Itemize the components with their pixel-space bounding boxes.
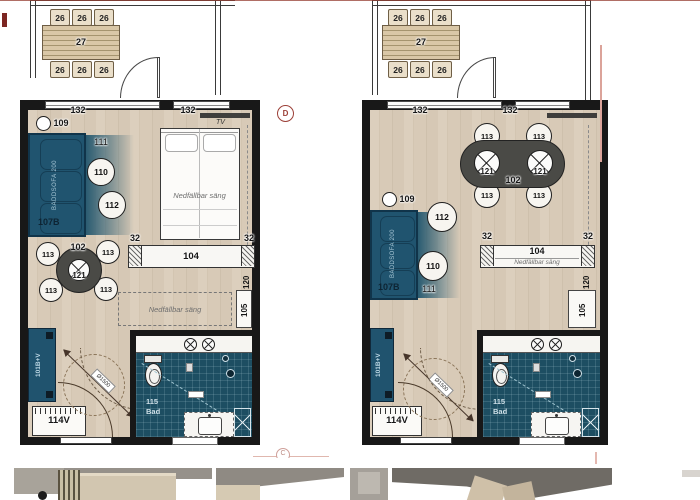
wardrobe-label: 101B+V <box>375 339 382 391</box>
bathroom-threshold <box>519 437 565 445</box>
balcony-chair: 26 <box>410 9 430 26</box>
render-thumbnail <box>216 468 344 500</box>
wardrobe: 101B+V <box>370 328 394 402</box>
render-wall <box>14 468 64 494</box>
grid-line-d <box>0 0 700 1</box>
dim-width: 132 <box>492 106 528 116</box>
dining-chair-label: 113 <box>45 286 57 295</box>
sofa-cushion <box>380 243 415 269</box>
fold-line <box>247 125 248 265</box>
balcony-chair: 26 <box>72 9 92 26</box>
render-ceiling <box>682 470 700 477</box>
side-table: 110 <box>418 251 448 281</box>
shelf-cabinet <box>241 246 254 266</box>
shower-head <box>569 355 576 362</box>
guide-tag <box>535 391 551 398</box>
lounge-chair-label: 112 <box>435 212 449 222</box>
bathroom-threshold <box>172 437 218 445</box>
pillow <box>165 134 198 152</box>
ceiling-spotlight <box>184 338 197 351</box>
sofa-cushion <box>40 171 82 202</box>
balcony-chair: 26 <box>432 9 452 26</box>
outlet-symbol <box>533 363 540 372</box>
balcony-door-arc <box>457 57 495 98</box>
dim-105: 105 <box>578 298 587 322</box>
shelf-cabinet <box>481 246 494 266</box>
rug-label: 111 <box>92 138 110 148</box>
balcony-chair-label: 26 <box>437 65 446 75</box>
bathroom-ceiling-band <box>136 336 252 353</box>
balcony-chair-label: 26 <box>77 65 86 75</box>
wall-left <box>20 110 28 445</box>
side-table: 110 <box>87 158 115 186</box>
balcony-chair: 26 <box>72 61 92 78</box>
spotlight-label: 121 <box>477 168 497 177</box>
grid-marker-c-label: C <box>280 449 285 458</box>
balcony-right: 27 26 26 26 26 26 26 <box>372 0 590 100</box>
wardrobe-handle <box>46 332 53 339</box>
sofa: BÄDDSOFA 200 107B <box>28 133 86 237</box>
bathroom-tiles: 115 Bad <box>483 353 600 437</box>
keynote-balloon <box>382 192 397 207</box>
balcony-railing-left <box>30 0 36 78</box>
side-table-label: 110 <box>94 167 108 177</box>
section-line-small <box>595 452 597 464</box>
vanity <box>531 412 581 437</box>
balcony-door-leaf <box>157 57 160 98</box>
balcony-left: 27 26 26 26 26 26 26 <box>30 0 235 100</box>
bath-name-label: Bad <box>146 407 160 416</box>
spotlight-label: 121 <box>530 168 550 177</box>
dining-chair-label: 113 <box>100 285 112 294</box>
dining-chair-label: 113 <box>102 248 114 257</box>
dining-chair-label: 113 <box>42 250 54 259</box>
balcony-chair: 26 <box>94 9 114 26</box>
render-cabinet <box>216 485 260 500</box>
balcony-table: 27 <box>42 25 120 60</box>
bed-seam <box>163 225 237 226</box>
fold-bed-label: Nedfällbar säng <box>495 258 579 266</box>
bathroom-tiles: 115 Bad <box>136 353 252 437</box>
balcony-table: 27 <box>382 25 460 60</box>
balcony-chair: 26 <box>410 61 430 78</box>
vanity-faucet <box>208 414 211 417</box>
shelf-unit: 104 Nedfällbar säng <box>480 245 595 268</box>
shower-head <box>222 355 229 362</box>
bathroom-ceiling-band <box>483 336 600 353</box>
dim-width: 132 <box>402 106 438 116</box>
balcony-divider <box>215 0 221 95</box>
bath-number-label: 115 <box>146 397 158 406</box>
shower <box>582 408 599 437</box>
dim-32: 32 <box>239 234 259 244</box>
rug-label: 111 <box>420 285 438 295</box>
balcony-chair-label: 26 <box>99 13 108 23</box>
wardrobe-label: 101B+V <box>35 339 42 391</box>
keynote-label: 109 <box>396 195 418 205</box>
side-table-label: 110 <box>426 261 440 271</box>
dim-104: 104 <box>495 247 579 257</box>
outlet-symbol <box>186 363 193 372</box>
render-thumbnail <box>616 470 700 500</box>
rug <box>86 135 134 235</box>
balcony-chair-label: 26 <box>415 65 424 75</box>
vanity-basin <box>545 417 569 435</box>
floor-drain <box>226 369 235 378</box>
tv-label: TV <box>216 119 225 126</box>
dim-104: 104 <box>143 252 239 262</box>
balcony-chair: 26 <box>432 61 452 78</box>
dining-table-label: 102 <box>68 243 88 253</box>
balcony-chair-label: 26 <box>99 65 108 75</box>
vanity-basin <box>198 417 222 435</box>
balcony-chair-label: 26 <box>393 13 402 23</box>
balcony-table-label: 27 <box>416 38 426 48</box>
section-line <box>600 45 602 162</box>
dining-table-label: 102 <box>503 176 523 186</box>
dining-chair-label: 113 <box>533 191 545 200</box>
bath-name-label: Bad <box>493 407 507 416</box>
toilet-tank <box>491 355 509 363</box>
dim-32: 32 <box>477 232 497 242</box>
grid-marker-d: D <box>277 105 294 122</box>
keynote-label: 109 <box>50 119 72 129</box>
bed-divider <box>199 129 200 238</box>
floor-plan-sheet: 27 26 26 26 26 26 26 27 26 26 26 26 26 2… <box>0 0 700 500</box>
balcony-chair: 26 <box>94 61 114 78</box>
balcony-chair: 26 <box>50 61 70 78</box>
fold-line <box>588 125 589 265</box>
render-wall <box>358 472 380 494</box>
ceiling-spotlight <box>202 338 215 351</box>
vanity-faucet <box>555 414 558 417</box>
balcony-chair-label: 26 <box>437 13 446 23</box>
render-lamp <box>38 491 47 500</box>
dim-105: 105 <box>240 298 249 322</box>
fold-bed-projection: Nedfällbar säng <box>118 292 232 326</box>
pillow <box>203 134 236 152</box>
balcony-door-arc <box>120 57 158 98</box>
section-tick <box>2 13 7 27</box>
bathroom: 115 Bad <box>130 330 252 437</box>
balcony-chair: 26 <box>50 9 70 26</box>
shelf-unit: 104 <box>128 245 255 268</box>
wall-right <box>252 110 260 445</box>
fold-bed-label: Nedfällbar säng <box>149 305 202 314</box>
balcony-wall-right <box>585 0 591 100</box>
dim-32: 32 <box>125 234 145 244</box>
shelf-cabinet <box>129 246 142 266</box>
balcony-chair-label: 26 <box>415 13 424 23</box>
wall-left <box>362 110 370 445</box>
keynote-balloon <box>36 116 51 131</box>
grid-marker-c: C <box>276 448 293 458</box>
balcony-chair-label: 26 <box>55 65 64 75</box>
fold-bed-label: Nedfällbar säng <box>161 191 238 200</box>
spotlight-label: 121 <box>69 272 89 281</box>
ceiling-spotlight <box>549 338 562 351</box>
fold-down-bed: Nedfällbar säng <box>160 128 240 240</box>
balcony-chair-label: 26 <box>55 13 64 23</box>
lounge-chair: 112 <box>98 191 126 219</box>
wardrobe-handle <box>385 391 392 398</box>
balcony-table-label: 27 <box>76 38 86 48</box>
render-slats <box>58 470 80 500</box>
grid-marker-d-label: D <box>283 109 289 118</box>
dim-32: 32 <box>578 232 598 242</box>
render-thumbnail <box>392 468 612 500</box>
sofa-cushion <box>40 139 82 170</box>
bathroom: 115 Bad <box>477 330 600 437</box>
dim-105-band: 105 <box>236 290 252 328</box>
tv-unit <box>200 113 250 118</box>
render-thumbnail <box>14 468 212 500</box>
wardrobe-handle <box>385 332 392 339</box>
balcony-door-leaf <box>493 57 496 98</box>
sofa-id-label: 107B <box>38 217 60 227</box>
render-cabinet <box>80 473 176 500</box>
balcony-divider <box>372 0 378 95</box>
lounge-chair-label: 112 <box>105 200 119 210</box>
bed-seam <box>163 209 237 210</box>
dining-chair-label: 113 <box>481 191 493 200</box>
floor-plan-left: 132 132 TV 109 BÄDDSOFA 200 107B 111 110… <box>20 100 260 445</box>
balcony-chair: 26 <box>388 9 408 26</box>
wardrobe: 101B+V <box>28 328 56 402</box>
floor-plan-right: 132 132 113 113 113 113 121 121 102 109 … <box>362 100 608 445</box>
bath-number-label: 115 <box>493 397 505 406</box>
balcony-chair-label: 26 <box>77 13 86 23</box>
guide-tag <box>188 391 204 398</box>
balcony-chair: 26 <box>388 61 408 78</box>
entry-door-leaf <box>400 437 452 444</box>
sofa-model-label: BÄDDSOFA 200 <box>52 153 58 217</box>
wall-bottom <box>20 437 260 445</box>
render-thumbnail <box>350 468 388 500</box>
dim-105-band: 105 <box>568 290 596 328</box>
sofa: BÄDDSOFA 200 107B <box>370 210 418 300</box>
toilet-tank <box>144 355 162 363</box>
wardrobe-handle <box>46 391 53 398</box>
shower <box>234 408 251 437</box>
ceiling-spotlight <box>531 338 544 351</box>
balcony-chair-label: 26 <box>393 65 402 75</box>
shelf-cabinet <box>581 246 594 266</box>
entry-door-leaf <box>60 437 112 444</box>
sofa-id-label: 107B <box>378 282 400 292</box>
wall-bottom <box>362 437 608 445</box>
vanity <box>184 412 234 437</box>
floor-drain <box>573 369 582 378</box>
dim-width: 132 <box>60 106 96 116</box>
lounge-chair: 112 <box>427 202 457 232</box>
tv-unit <box>547 113 597 118</box>
sofa-model-label: BÄDDSOFA 200 <box>390 226 396 282</box>
sofa-cushion <box>380 216 415 242</box>
